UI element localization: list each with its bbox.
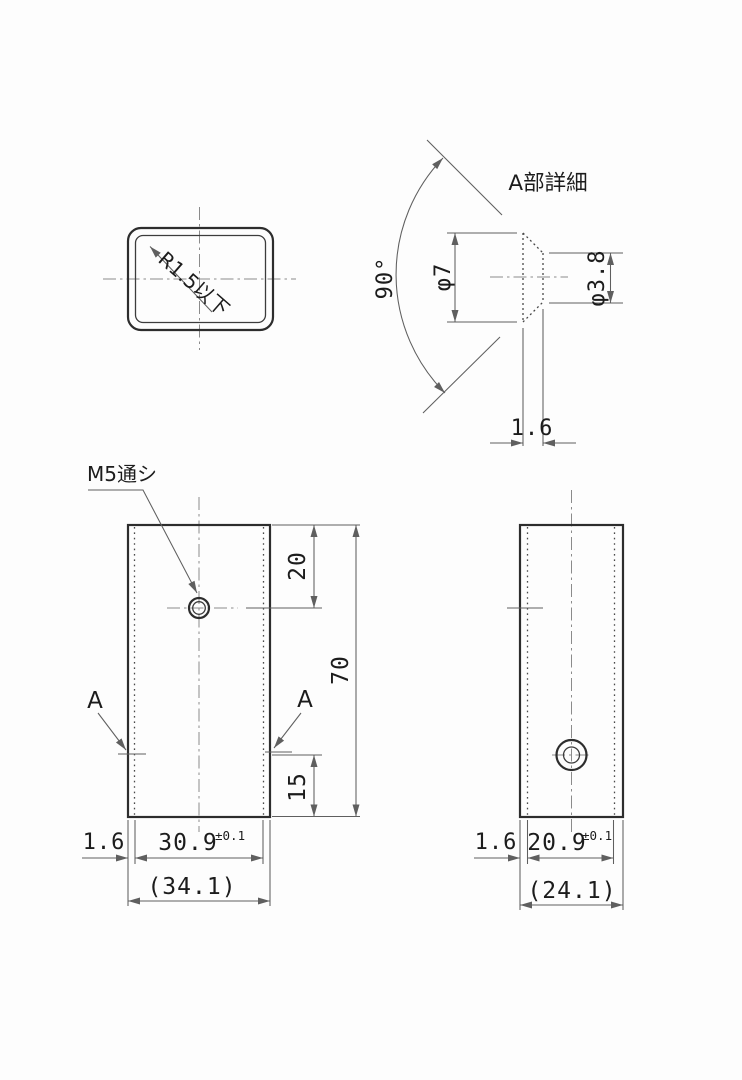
drawing-sheet: R1.5以下 A部詳細 90° φ7 φ3.8 1.6 — [0, 0, 742, 1080]
technical-drawing: R1.5以下 A部詳細 90° φ7 φ3.8 1.6 — [0, 0, 742, 1080]
dim-70-label: 70 — [328, 655, 354, 685]
angle-flank-line-lower — [423, 337, 500, 413]
section-a-leader-right — [274, 713, 301, 748]
side-view: 1.6 20.9 ±0.1 (24.1) — [474, 490, 623, 910]
countersink-cone-upper-hidden — [523, 233, 543, 253]
radius-note-label: R1.5以下 — [154, 247, 234, 321]
angle-dim-label: 90° — [373, 257, 398, 300]
inner-width-dim-label: 30.9 — [158, 830, 217, 856]
phi7-label: φ7 — [431, 263, 456, 292]
inner-depth-dim-label: 20.9 — [527, 830, 586, 856]
detail-a-view: A部詳細 90° φ7 φ3.8 1.6 — [373, 140, 623, 446]
side-wall-dim-label: 1.6 — [475, 830, 518, 855]
front-view: M5通シ A A 20 15 70 1.6 30.9 ±0.1 (34.1) — [82, 462, 360, 906]
detail-title: A部詳細 — [508, 171, 587, 196]
m5-note-label: M5通シ — [87, 462, 157, 486]
outer-width-dim-label: (34.1) — [147, 874, 236, 900]
angle-flank-line-upper — [427, 140, 502, 215]
outer-depth-dim-label: (24.1) — [527, 878, 616, 904]
detail-wall-dim-label: 1.6 — [511, 416, 554, 441]
dim-15-label: 15 — [285, 772, 311, 802]
cross-section-view: R1.5以下 — [103, 207, 296, 350]
inner-depth-tolerance-label: ±0.1 — [582, 828, 612, 843]
section-a-label-left: A — [87, 688, 103, 714]
m5-leader-arrow — [88, 490, 197, 593]
countersink-cone-lower-hidden — [523, 302, 543, 322]
phi38-label: φ3.8 — [585, 250, 610, 307]
front-wall-dim-label: 1.6 — [83, 830, 126, 855]
inner-width-tolerance-label: ±0.1 — [215, 828, 245, 843]
section-a-leader-left — [98, 713, 126, 750]
section-a-label-right: A — [297, 687, 313, 713]
dim-20-label: 20 — [285, 551, 311, 581]
